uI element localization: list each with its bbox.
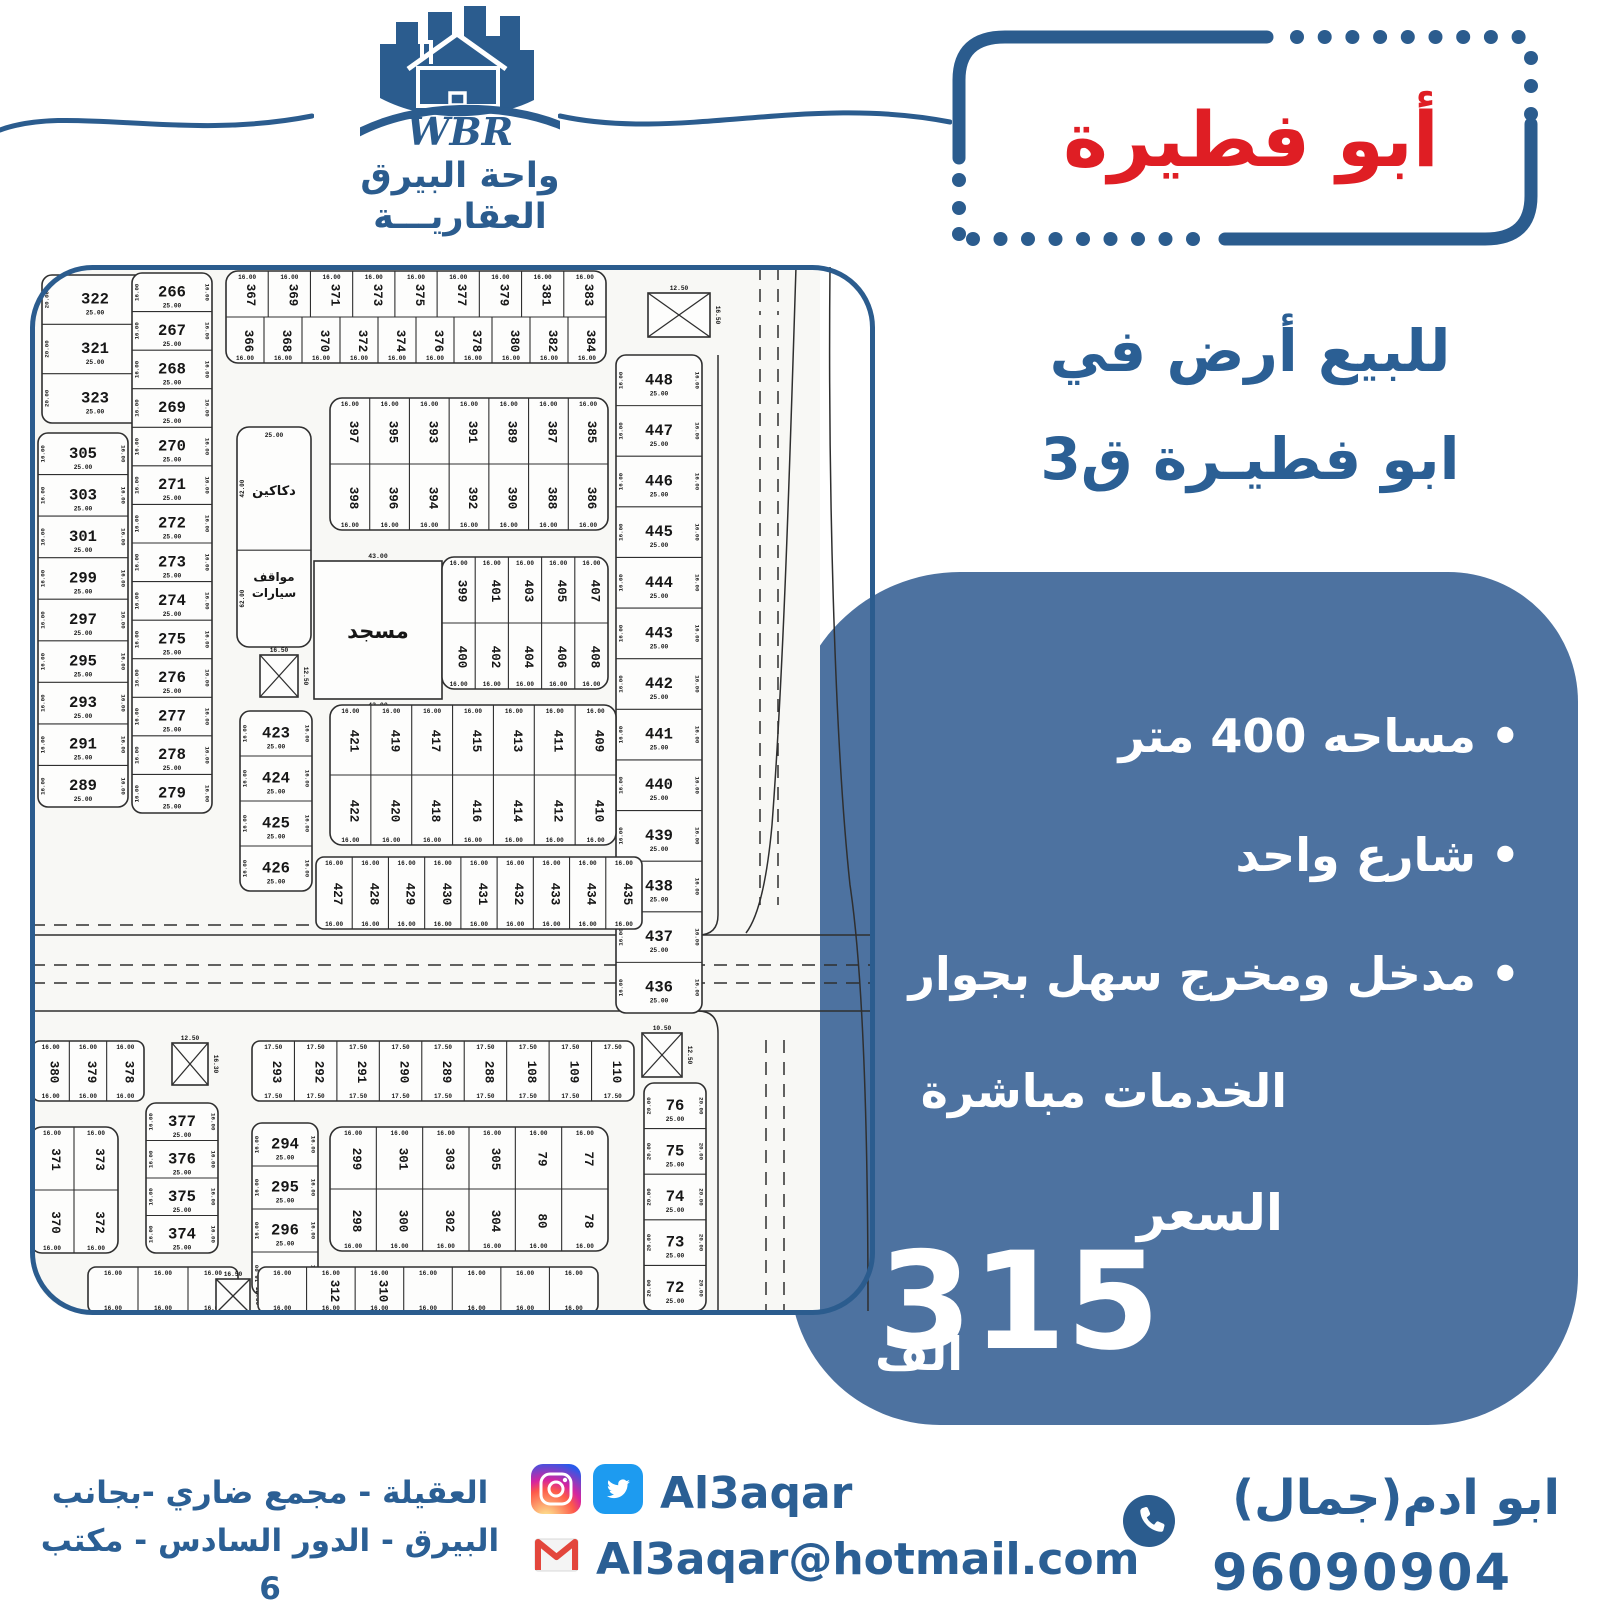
svg-text:17.50: 17.50 xyxy=(434,1044,452,1051)
svg-text:16.00: 16.00 xyxy=(43,1245,61,1252)
svg-text:411: 411 xyxy=(551,730,565,753)
svg-text:16.00: 16.00 xyxy=(280,274,298,281)
svg-text:16.00: 16.00 xyxy=(529,1130,547,1137)
svg-text:17.50: 17.50 xyxy=(307,1093,325,1100)
svg-text:16.00: 16.00 xyxy=(618,827,625,845)
svg-text:391: 391 xyxy=(465,421,479,444)
svg-text:16.00: 16.00 xyxy=(587,708,605,715)
phone-icon xyxy=(1122,1494,1176,1552)
offer-details: مساحه 400 متر شارع واحد مدخل ومخرج سهل ب… xyxy=(790,572,1578,1425)
svg-text:377: 377 xyxy=(168,1113,196,1131)
svg-text:16.00: 16.00 xyxy=(104,1270,122,1277)
svg-text:419: 419 xyxy=(387,730,401,753)
svg-text:273: 273 xyxy=(158,553,186,571)
svg-text:78: 78 xyxy=(581,1213,595,1228)
svg-text:303: 303 xyxy=(69,486,97,504)
svg-text:16.00: 16.00 xyxy=(79,1044,97,1051)
svg-text:مسجد: مسجد xyxy=(347,619,409,643)
svg-text:17.50: 17.50 xyxy=(392,1093,410,1100)
svg-text:17.50: 17.50 xyxy=(476,1093,494,1100)
svg-text:407: 407 xyxy=(587,580,601,603)
svg-text:406: 406 xyxy=(554,646,568,669)
svg-text:16.00: 16.00 xyxy=(148,1113,155,1131)
svg-text:299: 299 xyxy=(69,569,97,587)
svg-text:394: 394 xyxy=(425,487,439,510)
svg-text:16.00: 16.00 xyxy=(254,1221,261,1239)
company-logo: WBR واحة البيرق العقاريـــة xyxy=(330,2,590,239)
svg-text:16.00: 16.00 xyxy=(40,777,47,795)
svg-text:16.00: 16.00 xyxy=(579,522,597,529)
svg-text:367: 367 xyxy=(243,284,257,307)
svg-text:438: 438 xyxy=(645,877,673,895)
svg-text:378: 378 xyxy=(469,330,483,353)
svg-text:272: 272 xyxy=(158,515,186,533)
page-title: أبو فطيرة xyxy=(945,28,1557,250)
svg-text:25.00: 25.00 xyxy=(267,744,286,751)
svg-text:16.00: 16.00 xyxy=(254,1135,261,1153)
svg-text:16.00: 16.00 xyxy=(148,1150,155,1168)
svg-text:17.50: 17.50 xyxy=(264,1093,282,1100)
gmail-icon[interactable] xyxy=(533,1537,580,1577)
office-address: العقيلة - مجمع ضاري -بجانب البيرق - الدو… xyxy=(30,1469,510,1600)
svg-text:293: 293 xyxy=(269,1061,283,1084)
svg-text:17.50: 17.50 xyxy=(604,1044,622,1051)
logo-name-line2: العقاريـــة xyxy=(330,197,590,238)
svg-text:25.00: 25.00 xyxy=(74,630,93,637)
svg-text:16.00: 16.00 xyxy=(40,569,47,587)
svg-text:62.00: 62.00 xyxy=(239,589,246,607)
svg-text:12.50: 12.50 xyxy=(181,1035,200,1042)
svg-text:292: 292 xyxy=(312,1061,326,1084)
svg-text:288: 288 xyxy=(481,1061,495,1084)
svg-text:446: 446 xyxy=(645,473,673,491)
svg-text:17.50: 17.50 xyxy=(349,1093,367,1100)
feature-access-continuation: الخدمات مباشرة xyxy=(921,1064,1287,1118)
svg-text:16.00: 16.00 xyxy=(344,1243,362,1250)
svg-text:16.00: 16.00 xyxy=(540,355,558,362)
svg-text:16.00: 16.00 xyxy=(491,274,509,281)
svg-text:25.00: 25.00 xyxy=(163,688,182,695)
twitter-icon[interactable] xyxy=(593,1464,643,1514)
svg-text:25.00: 25.00 xyxy=(650,846,669,853)
svg-text:76: 76 xyxy=(666,1097,685,1115)
svg-text:269: 269 xyxy=(158,399,186,417)
svg-text:385: 385 xyxy=(584,421,598,444)
feature-area: مساحه 400 متر xyxy=(909,710,1520,763)
svg-text:321: 321 xyxy=(81,340,109,358)
svg-text:16.00: 16.00 xyxy=(120,694,127,712)
svg-text:376: 376 xyxy=(431,330,445,353)
svg-text:20.00: 20.00 xyxy=(698,1097,705,1115)
svg-text:298: 298 xyxy=(349,1210,363,1233)
svg-text:402: 402 xyxy=(488,646,502,669)
svg-text:393: 393 xyxy=(425,421,439,444)
svg-text:16.00: 16.00 xyxy=(483,1243,501,1250)
svg-text:16.00: 16.00 xyxy=(615,921,633,928)
svg-text:389: 389 xyxy=(505,421,519,444)
listing-headline-line2: ابو فطيـرة ق3 xyxy=(900,430,1600,488)
svg-text:20.00: 20.00 xyxy=(44,340,51,358)
svg-text:16.00: 16.00 xyxy=(134,399,141,417)
svg-text:405: 405 xyxy=(554,580,568,603)
svg-text:16.00: 16.00 xyxy=(242,724,249,742)
svg-text:428: 428 xyxy=(366,883,380,906)
svg-text:16.00: 16.00 xyxy=(204,322,211,340)
svg-text:16.00: 16.00 xyxy=(618,928,625,946)
svg-text:289: 289 xyxy=(439,1061,453,1084)
svg-text:16.00: 16.00 xyxy=(304,815,311,833)
svg-text:16.00: 16.00 xyxy=(134,322,141,340)
svg-text:16.00: 16.00 xyxy=(310,1136,317,1154)
svg-text:436: 436 xyxy=(645,979,673,997)
svg-text:16.00: 16.00 xyxy=(341,401,359,408)
svg-text:293: 293 xyxy=(69,694,97,712)
svg-text:25.00: 25.00 xyxy=(650,947,669,954)
svg-text:441: 441 xyxy=(645,726,673,744)
svg-text:25.00: 25.00 xyxy=(267,834,286,841)
svg-text:16.00: 16.00 xyxy=(694,777,701,795)
svg-text:25.00: 25.00 xyxy=(163,495,182,502)
svg-text:16.00: 16.00 xyxy=(694,675,701,693)
svg-text:297: 297 xyxy=(69,611,97,629)
svg-text:16.00: 16.00 xyxy=(539,401,557,408)
svg-text:16.00: 16.00 xyxy=(361,860,379,867)
svg-text:16.00: 16.00 xyxy=(254,1178,261,1196)
svg-text:16.00: 16.00 xyxy=(398,921,416,928)
svg-text:16.00: 16.00 xyxy=(694,523,701,541)
svg-text:20.00: 20.00 xyxy=(646,1097,653,1115)
svg-text:301: 301 xyxy=(69,528,97,546)
svg-text:17.50: 17.50 xyxy=(307,1044,325,1051)
svg-text:20.00: 20.00 xyxy=(646,1188,653,1206)
svg-text:16.00: 16.00 xyxy=(549,681,567,688)
svg-text:25.00: 25.00 xyxy=(163,649,182,656)
svg-text:372: 372 xyxy=(355,330,369,353)
svg-text:16.00: 16.00 xyxy=(325,921,343,928)
svg-text:25.00: 25.00 xyxy=(666,1298,685,1305)
svg-text:291: 291 xyxy=(354,1061,368,1084)
svg-text:17.50: 17.50 xyxy=(264,1044,282,1051)
svg-text:16.00: 16.00 xyxy=(694,625,701,643)
svg-text:424: 424 xyxy=(262,770,290,788)
svg-text:25.00: 25.00 xyxy=(666,1161,685,1168)
svg-text:25.00: 25.00 xyxy=(86,408,105,415)
svg-text:270: 270 xyxy=(158,438,186,456)
svg-text:380: 380 xyxy=(47,1061,61,1084)
svg-text:431: 431 xyxy=(475,883,489,906)
svg-text:16.00: 16.00 xyxy=(341,837,359,844)
svg-text:16.00: 16.00 xyxy=(204,361,211,379)
svg-text:16.00: 16.00 xyxy=(579,860,597,867)
svg-text:16.00: 16.00 xyxy=(134,785,141,803)
svg-text:25.00: 25.00 xyxy=(650,795,669,802)
svg-text:277: 277 xyxy=(158,708,186,726)
svg-text:16.00: 16.00 xyxy=(483,1130,501,1137)
svg-text:16.00: 16.00 xyxy=(419,1270,437,1277)
svg-text:25.00: 25.00 xyxy=(650,492,669,499)
logo-wbr-text: WBR xyxy=(407,109,513,152)
svg-text:16.00: 16.00 xyxy=(483,681,501,688)
svg-text:412: 412 xyxy=(551,800,565,823)
svg-text:445: 445 xyxy=(645,523,673,541)
svg-text:25.00: 25.00 xyxy=(74,796,93,803)
svg-text:16.00: 16.00 xyxy=(470,921,488,928)
svg-text:16.00: 16.00 xyxy=(310,1179,317,1197)
svg-text:16.00: 16.00 xyxy=(565,1270,583,1277)
svg-text:374: 374 xyxy=(393,330,407,353)
svg-text:16.30: 16.30 xyxy=(212,1055,219,1074)
svg-text:16.00: 16.00 xyxy=(134,630,141,648)
svg-text:386: 386 xyxy=(584,487,598,510)
svg-text:73: 73 xyxy=(666,1234,685,1252)
svg-text:25.00: 25.00 xyxy=(267,879,286,886)
svg-text:16.00: 16.00 xyxy=(323,274,341,281)
svg-text:383: 383 xyxy=(581,284,595,307)
office-address-line1: العقيلة - مجمع ضاري -بجانب xyxy=(30,1469,510,1517)
svg-text:437: 437 xyxy=(645,928,673,946)
svg-text:16.00: 16.00 xyxy=(304,770,311,788)
svg-text:16.00: 16.00 xyxy=(204,746,211,764)
svg-text:16.00: 16.00 xyxy=(420,522,438,529)
svg-text:25.00: 25.00 xyxy=(265,432,284,439)
svg-text:20.00: 20.00 xyxy=(646,1142,653,1160)
svg-text:16.00: 16.00 xyxy=(42,1093,60,1100)
svg-text:377: 377 xyxy=(454,284,468,307)
svg-text:25.00: 25.00 xyxy=(173,1207,192,1214)
svg-text:16.00: 16.00 xyxy=(134,476,141,494)
svg-text:16.00: 16.00 xyxy=(43,1130,61,1137)
svg-text:369: 369 xyxy=(285,284,299,307)
svg-text:25.00: 25.00 xyxy=(163,611,182,618)
svg-text:416: 416 xyxy=(469,800,483,823)
svg-text:16.00: 16.00 xyxy=(576,1243,594,1250)
svg-text:16.00: 16.00 xyxy=(460,522,478,529)
svg-text:16.00: 16.00 xyxy=(204,708,211,726)
svg-text:376: 376 xyxy=(168,1150,196,1168)
svg-text:323: 323 xyxy=(81,389,109,407)
svg-text:25.00: 25.00 xyxy=(74,713,93,720)
svg-text:25.00: 25.00 xyxy=(666,1207,685,1214)
svg-text:17.50: 17.50 xyxy=(476,1044,494,1051)
svg-text:25.00: 25.00 xyxy=(163,572,182,579)
svg-text:16.00: 16.00 xyxy=(579,921,597,928)
svg-text:312: 312 xyxy=(327,1280,341,1303)
svg-text:25.00: 25.00 xyxy=(276,1155,295,1162)
svg-text:16.00: 16.00 xyxy=(516,1270,534,1277)
svg-text:16.00: 16.00 xyxy=(40,528,47,546)
svg-text:10.50: 10.50 xyxy=(653,1025,672,1032)
svg-text:16.00: 16.00 xyxy=(437,1243,455,1250)
svg-text:16.00: 16.00 xyxy=(120,611,127,629)
svg-text:372: 372 xyxy=(92,1211,106,1234)
logo-name: واحة البيرق العقاريـــة xyxy=(330,156,590,239)
svg-text:370: 370 xyxy=(317,330,331,353)
svg-text:16.00: 16.00 xyxy=(390,1243,408,1250)
svg-text:16.00: 16.00 xyxy=(576,1130,594,1137)
svg-text:16.00: 16.00 xyxy=(388,355,406,362)
svg-text:16.00: 16.00 xyxy=(204,631,211,649)
svg-text:16.00: 16.00 xyxy=(382,837,400,844)
svg-text:16.00: 16.00 xyxy=(120,445,127,463)
svg-text:442: 442 xyxy=(645,675,673,693)
svg-text:16.00: 16.00 xyxy=(587,837,605,844)
svg-text:75: 75 xyxy=(666,1142,685,1160)
svg-text:80: 80 xyxy=(535,1213,549,1228)
instagram-icon[interactable] xyxy=(531,1464,581,1514)
svg-text:16.00: 16.00 xyxy=(120,528,127,546)
svg-text:427: 427 xyxy=(330,883,344,906)
svg-text:16.50: 16.50 xyxy=(224,1271,243,1278)
svg-text:302: 302 xyxy=(442,1210,456,1233)
svg-text:16.00: 16.00 xyxy=(238,274,256,281)
svg-text:16.00: 16.00 xyxy=(500,401,518,408)
svg-text:16.00: 16.00 xyxy=(450,560,468,567)
svg-text:16.00: 16.00 xyxy=(450,681,468,688)
svg-text:16.00: 16.00 xyxy=(134,437,141,455)
svg-text:16.00: 16.00 xyxy=(134,360,141,378)
email-address[interactable]: Al3aqar@hotmail.com xyxy=(596,1534,1140,1585)
svg-text:420: 420 xyxy=(387,800,401,823)
svg-text:16.00: 16.00 xyxy=(134,553,141,571)
svg-text:25.00: 25.00 xyxy=(173,1132,192,1139)
svg-text:16.00: 16.00 xyxy=(273,1270,291,1277)
svg-text:278: 278 xyxy=(158,746,186,764)
price-unit: الف xyxy=(875,1327,963,1381)
svg-text:25.00: 25.00 xyxy=(173,1244,192,1251)
svg-text:435: 435 xyxy=(620,883,634,906)
svg-text:17.50: 17.50 xyxy=(349,1044,367,1051)
svg-text:414: 414 xyxy=(510,800,524,823)
svg-text:16.00: 16.00 xyxy=(134,707,141,725)
svg-text:16.50: 16.50 xyxy=(714,306,721,325)
svg-text:16.00: 16.00 xyxy=(40,652,47,670)
svg-text:25.00: 25.00 xyxy=(86,359,105,366)
svg-text:378: 378 xyxy=(121,1061,135,1084)
svg-text:447: 447 xyxy=(645,422,673,440)
svg-text:16.00: 16.00 xyxy=(40,486,47,504)
svg-text:25.00: 25.00 xyxy=(74,505,93,512)
svg-text:421: 421 xyxy=(346,730,360,753)
svg-text:25.00: 25.00 xyxy=(163,534,182,541)
svg-text:16.00: 16.00 xyxy=(464,837,482,844)
left-wave-decoration xyxy=(0,96,314,146)
svg-text:397: 397 xyxy=(346,421,360,444)
svg-text:12.50: 12.50 xyxy=(302,667,309,686)
svg-text:20.00: 20.00 xyxy=(646,1279,653,1297)
svg-text:25.00: 25.00 xyxy=(650,745,669,752)
svg-text:16.00: 16.00 xyxy=(449,274,467,281)
svg-text:17.50: 17.50 xyxy=(604,1093,622,1100)
svg-text:379: 379 xyxy=(84,1061,98,1084)
svg-text:16.00: 16.00 xyxy=(134,592,141,610)
cadastral-map: 32225.0020.0020.0032125.0020.0020.003232… xyxy=(30,265,875,1315)
svg-text:16.00: 16.00 xyxy=(618,574,625,592)
svg-text:16.00: 16.00 xyxy=(407,274,425,281)
svg-text:16.00: 16.00 xyxy=(304,860,311,878)
svg-text:305: 305 xyxy=(488,1148,502,1171)
svg-text:443: 443 xyxy=(645,624,673,642)
svg-text:25.00: 25.00 xyxy=(74,755,93,762)
svg-text:16.00: 16.00 xyxy=(694,979,701,997)
svg-text:380: 380 xyxy=(507,330,521,353)
svg-text:16.00: 16.00 xyxy=(516,681,534,688)
svg-text:16.00: 16.00 xyxy=(204,669,211,687)
svg-text:16.00: 16.00 xyxy=(134,515,141,533)
svg-text:434: 434 xyxy=(584,883,598,906)
svg-text:16.00: 16.00 xyxy=(464,355,482,362)
svg-text:25.00: 25.00 xyxy=(666,1116,685,1123)
svg-text:16.00: 16.00 xyxy=(341,708,359,715)
social-handle[interactable]: Al3aqar xyxy=(660,1468,852,1519)
svg-text:301: 301 xyxy=(396,1148,410,1171)
svg-text:16.00: 16.00 xyxy=(618,523,625,541)
svg-text:16.00: 16.00 xyxy=(210,1188,217,1206)
svg-text:299: 299 xyxy=(349,1148,363,1171)
svg-text:16.00: 16.00 xyxy=(618,978,625,996)
svg-text:16.00: 16.00 xyxy=(204,554,211,572)
svg-text:25.00: 25.00 xyxy=(86,310,105,317)
svg-text:16.00: 16.00 xyxy=(42,1044,60,1051)
svg-text:16.00: 16.00 xyxy=(529,1243,547,1250)
phone-number[interactable]: 96090904 xyxy=(1212,1544,1512,1600)
svg-text:426: 426 xyxy=(262,860,290,878)
svg-text:16.00: 16.00 xyxy=(204,438,211,456)
svg-text:16.00: 16.00 xyxy=(40,611,47,629)
svg-text:440: 440 xyxy=(645,776,673,794)
svg-text:16.00: 16.00 xyxy=(204,515,211,533)
svg-text:304: 304 xyxy=(488,1210,502,1233)
svg-text:دكاكين: دكاكين xyxy=(252,484,296,499)
svg-text:16.00: 16.00 xyxy=(423,708,441,715)
svg-text:291: 291 xyxy=(69,736,97,754)
svg-text:16.00: 16.00 xyxy=(236,355,254,362)
svg-text:16.00: 16.00 xyxy=(242,769,249,787)
office-address-line2: البيرق - الدور السادس - مكتب 6 xyxy=(30,1517,510,1600)
svg-text:16.00: 16.00 xyxy=(618,472,625,490)
svg-text:16.00: 16.00 xyxy=(578,355,596,362)
svg-text:16.00: 16.00 xyxy=(470,860,488,867)
svg-text:371: 371 xyxy=(328,284,342,307)
svg-text:300: 300 xyxy=(396,1210,410,1233)
svg-text:16.00: 16.00 xyxy=(423,837,441,844)
svg-text:16.00: 16.00 xyxy=(242,814,249,832)
svg-text:25.00: 25.00 xyxy=(74,464,93,471)
svg-text:418: 418 xyxy=(428,800,442,823)
svg-text:415: 415 xyxy=(469,730,483,753)
svg-text:322: 322 xyxy=(81,291,109,309)
svg-text:17.50: 17.50 xyxy=(519,1044,537,1051)
svg-text:110: 110 xyxy=(609,1061,623,1084)
svg-text:16.00: 16.00 xyxy=(618,422,625,440)
listing-headline-line1: للبيع أرض في xyxy=(900,322,1600,380)
svg-text:305: 305 xyxy=(69,445,97,463)
svg-text:16.00: 16.00 xyxy=(502,355,520,362)
svg-text:مواقف: مواقف xyxy=(253,570,294,585)
svg-text:390: 390 xyxy=(505,487,519,510)
svg-text:16.00: 16.00 xyxy=(116,1044,134,1051)
svg-text:16.00: 16.00 xyxy=(120,653,127,671)
svg-text:16.00: 16.00 xyxy=(310,1222,317,1240)
flyer-canvas: WBR واحة البيرق العقاريـــة أبو فطيرة لل… xyxy=(0,0,1600,1600)
logo-skyline-icon: WBR xyxy=(360,2,560,152)
svg-text:279: 279 xyxy=(158,785,186,803)
svg-text:271: 271 xyxy=(158,476,186,494)
feature-access: مدخل ومخرج سهل بجوار xyxy=(909,948,1520,1001)
svg-text:16.00: 16.00 xyxy=(542,921,560,928)
svg-text:25.00: 25.00 xyxy=(74,547,93,554)
svg-text:382: 382 xyxy=(545,330,559,353)
svg-text:16.00: 16.00 xyxy=(210,1113,217,1131)
